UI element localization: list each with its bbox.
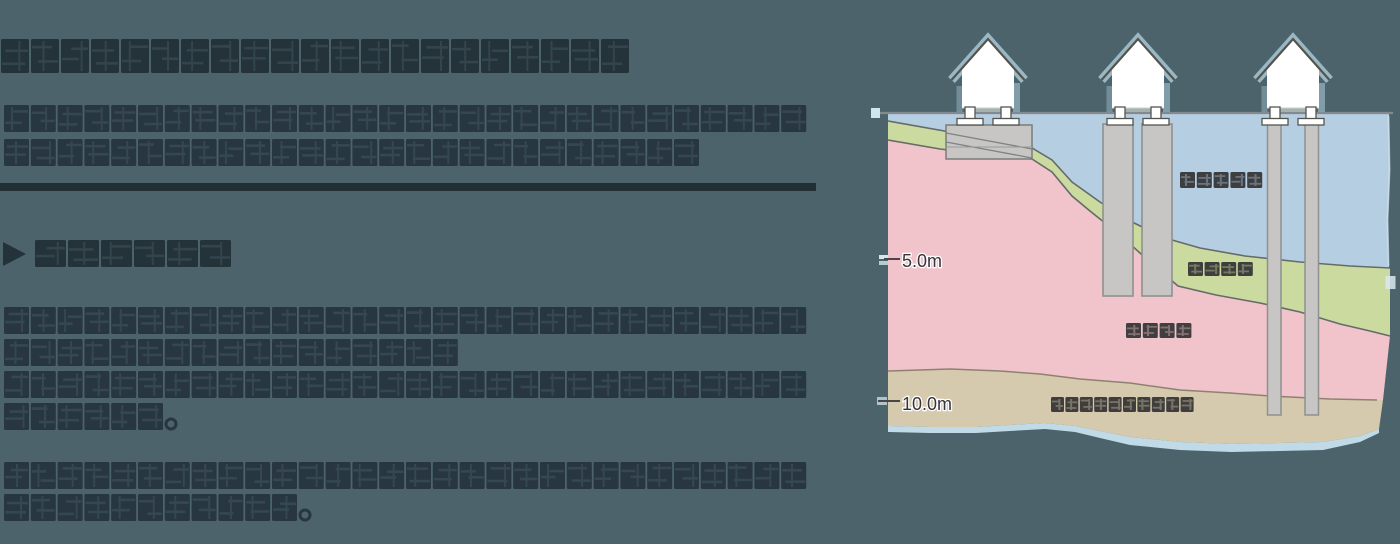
svg-text:10.0m: 10.0m xyxy=(902,394,952,414)
svg-text:5.0m: 5.0m xyxy=(902,251,942,271)
